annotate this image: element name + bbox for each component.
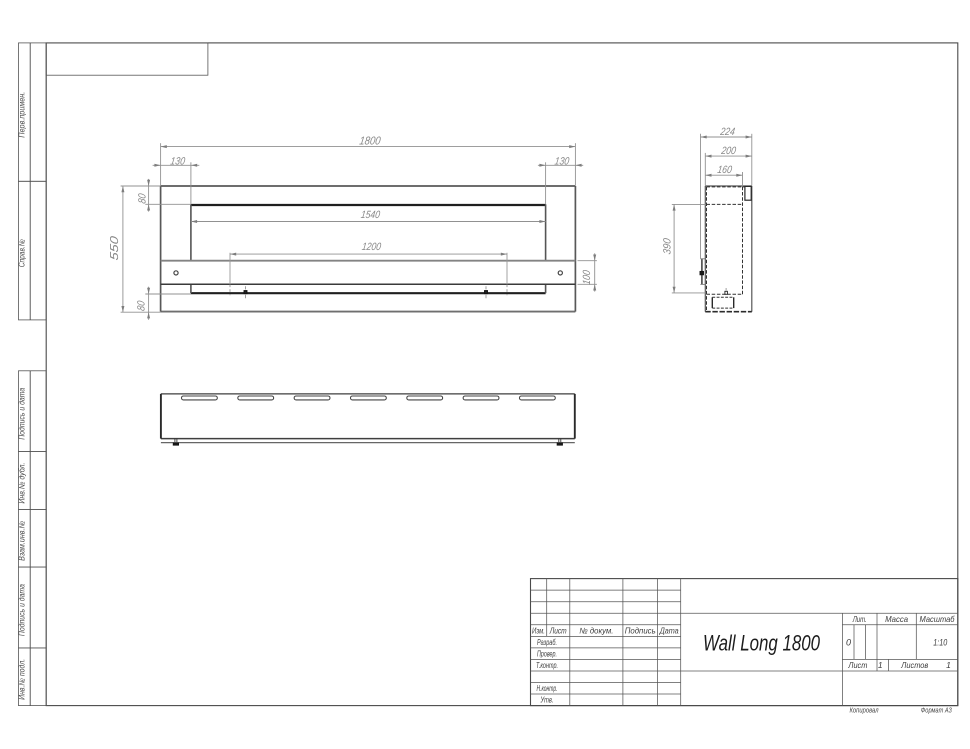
svg-text:130: 130	[554, 156, 570, 168]
svg-text:Т.контр.: Т.контр.	[536, 661, 558, 670]
svg-text:Подпись: Подпись	[625, 626, 656, 635]
svg-text:130: 130	[170, 156, 186, 168]
svg-text:100: 100	[581, 269, 593, 285]
svg-text:Формат А3: Формат А3	[921, 707, 952, 714]
svg-text:80: 80	[136, 193, 148, 205]
svg-text:Подпись и дата: Подпись и дата	[18, 584, 27, 637]
svg-text:1540: 1540	[360, 209, 381, 221]
svg-text:Лист: Лист	[549, 626, 567, 635]
svg-text:Лист: Лист	[847, 661, 867, 670]
svg-text:Провер.: Провер.	[537, 649, 557, 658]
svg-text:Изм.: Изм.	[532, 626, 545, 635]
svg-text:1:10: 1:10	[933, 638, 947, 648]
svg-text:1: 1	[878, 660, 883, 670]
svg-text:80: 80	[136, 300, 148, 312]
svg-text:Инв.№ дубл.: Инв.№ дубл.	[18, 463, 27, 504]
svg-text:Копировал: Копировал	[850, 707, 879, 714]
svg-text:Лит.: Лит.	[852, 615, 867, 624]
svg-text:Перв.примен.: Перв.примен.	[18, 92, 27, 138]
svg-text:550: 550	[109, 235, 121, 261]
svg-text:160: 160	[717, 164, 733, 176]
svg-text:Инв.№ подл.: Инв.№ подл.	[18, 659, 27, 700]
svg-text:Дата: Дата	[659, 626, 679, 635]
svg-text:200: 200	[720, 145, 737, 157]
svg-text:0: 0	[846, 638, 851, 648]
svg-text:Wall Long 1800: Wall Long 1800	[703, 630, 820, 655]
svg-text:Разраб.: Разраб.	[537, 638, 557, 647]
svg-text:Масса: Масса	[885, 615, 908, 624]
svg-text:Справ.№: Справ.№	[18, 239, 27, 267]
svg-text:Листов: Листов	[900, 661, 929, 670]
svg-text:1: 1	[946, 660, 951, 670]
svg-text:1800: 1800	[359, 135, 382, 147]
svg-text:№ докум.: № докум.	[579, 626, 613, 635]
svg-text:Масштаб: Масштаб	[920, 615, 955, 624]
svg-text:Утв.: Утв.	[540, 696, 554, 705]
svg-text:390: 390	[661, 237, 673, 255]
svg-text:Подпись и дата: Подпись и дата	[18, 387, 27, 440]
svg-text:1200: 1200	[361, 241, 382, 253]
svg-text:Н.контр.: Н.контр.	[537, 684, 558, 693]
svg-text:224: 224	[719, 126, 736, 138]
svg-text:Взам.инв.№: Взам.инв.№	[18, 521, 27, 561]
